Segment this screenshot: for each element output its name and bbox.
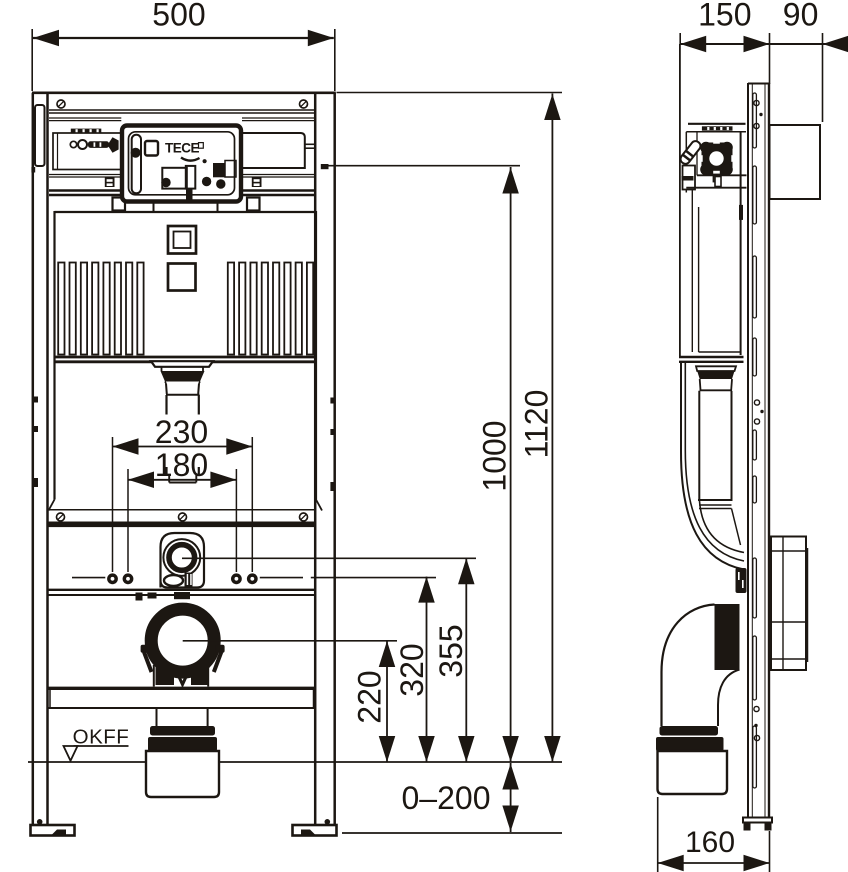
svg-text:320: 320 <box>394 643 430 696</box>
svg-text:160: 160 <box>685 826 735 859</box>
svg-text:90: 90 <box>783 0 819 33</box>
svg-text:230: 230 <box>155 414 208 450</box>
svg-text:500: 500 <box>152 0 205 33</box>
svg-text:1120: 1120 <box>519 390 555 459</box>
svg-text:220: 220 <box>352 670 388 723</box>
svg-text:150: 150 <box>698 0 751 33</box>
svg-text:180: 180 <box>155 447 208 483</box>
svg-text:1000: 1000 <box>477 420 513 491</box>
svg-text:TECE: TECE <box>165 141 200 156</box>
svg-text:0–200: 0–200 <box>402 780 491 816</box>
svg-text:355: 355 <box>433 624 469 677</box>
svg-text:OKFF: OKFF <box>73 726 130 749</box>
